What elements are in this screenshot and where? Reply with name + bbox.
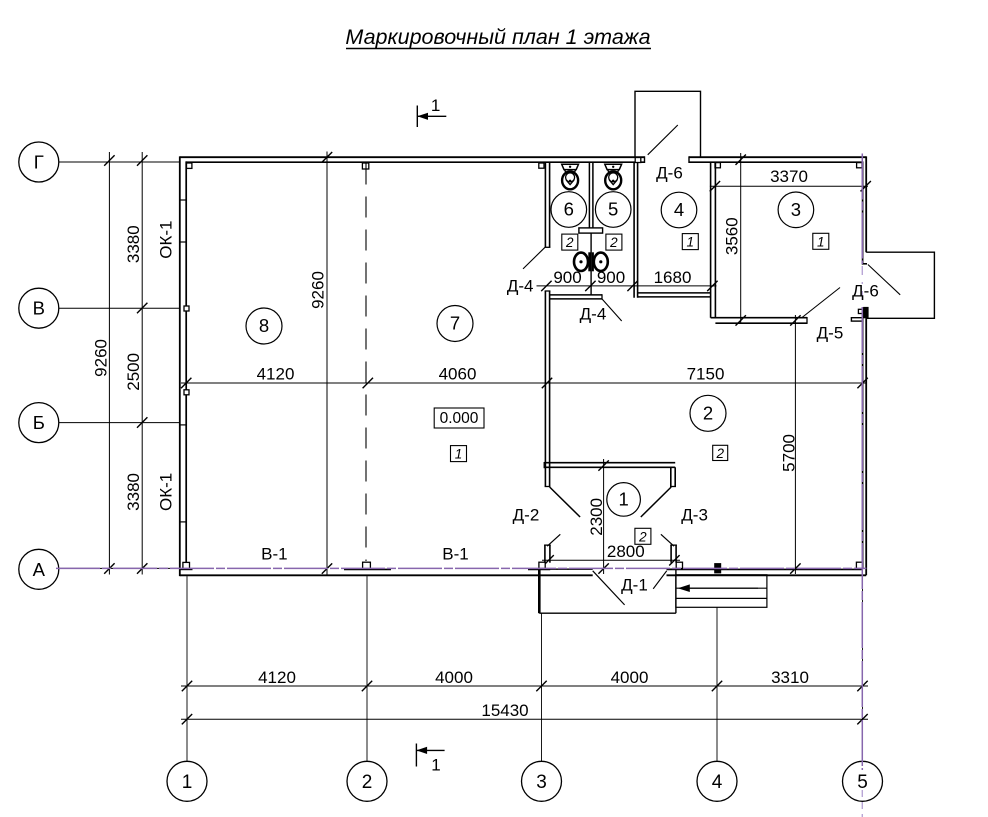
svg-text:4: 4 xyxy=(674,199,684,220)
svg-text:7150: 7150 xyxy=(687,365,725,384)
svg-text:Г: Г xyxy=(34,152,44,173)
svg-text:3370: 3370 xyxy=(770,167,808,186)
svg-text:3380: 3380 xyxy=(124,225,143,263)
svg-text:9260: 9260 xyxy=(309,271,328,309)
svg-text:15430: 15430 xyxy=(481,701,528,720)
svg-text:3310: 3310 xyxy=(771,668,809,687)
svg-text:9260: 9260 xyxy=(92,339,111,377)
svg-text:2: 2 xyxy=(638,529,647,544)
svg-text:В: В xyxy=(33,298,45,319)
svg-text:Д-3: Д-3 xyxy=(681,506,708,525)
svg-text:Д-4: Д-4 xyxy=(580,305,607,324)
svg-text:А: А xyxy=(33,559,46,580)
svg-text:3: 3 xyxy=(536,772,547,793)
svg-text:4060: 4060 xyxy=(439,365,477,384)
svg-text:1: 1 xyxy=(687,235,695,250)
svg-text:Б: Б xyxy=(33,412,45,433)
svg-text:2: 2 xyxy=(362,772,373,793)
svg-text:8: 8 xyxy=(259,315,269,336)
svg-text:Д-5: Д-5 xyxy=(817,324,844,343)
svg-text:ОК-1: ОК-1 xyxy=(157,473,176,511)
svg-text:5700: 5700 xyxy=(779,434,798,472)
svg-text:Д-2: Д-2 xyxy=(513,506,540,525)
svg-text:Д-6: Д-6 xyxy=(852,282,879,301)
svg-text:2500: 2500 xyxy=(124,353,143,391)
svg-text:В-1: В-1 xyxy=(442,545,468,564)
svg-text:3560: 3560 xyxy=(723,217,742,255)
svg-text:4120: 4120 xyxy=(257,365,295,384)
svg-text:Д-1: Д-1 xyxy=(621,576,648,595)
svg-text:5: 5 xyxy=(608,199,618,220)
svg-text:1: 1 xyxy=(817,234,825,249)
svg-text:ОК-1: ОК-1 xyxy=(157,220,176,258)
svg-text:3: 3 xyxy=(791,199,801,220)
svg-text:4120: 4120 xyxy=(258,668,296,687)
svg-text:Д-6: Д-6 xyxy=(656,164,683,183)
svg-text:2: 2 xyxy=(609,235,618,250)
svg-text:3380: 3380 xyxy=(124,473,143,511)
svg-text:2300: 2300 xyxy=(587,498,606,536)
svg-text:6: 6 xyxy=(564,199,574,220)
svg-text:0.000: 0.000 xyxy=(440,410,479,427)
svg-text:2: 2 xyxy=(565,235,574,250)
svg-text:В-1: В-1 xyxy=(261,545,287,564)
svg-text:1: 1 xyxy=(455,447,463,462)
svg-text:1: 1 xyxy=(618,488,628,509)
svg-text:1: 1 xyxy=(431,96,440,115)
svg-text:1: 1 xyxy=(431,756,440,775)
svg-text:2: 2 xyxy=(715,446,724,461)
svg-text:1680: 1680 xyxy=(654,268,692,287)
svg-text:7: 7 xyxy=(450,313,460,334)
svg-text:4000: 4000 xyxy=(611,668,649,687)
svg-text:5: 5 xyxy=(857,772,868,793)
svg-text:4: 4 xyxy=(712,772,723,793)
svg-text:Д-4: Д-4 xyxy=(507,277,534,296)
svg-text:4000: 4000 xyxy=(435,668,473,687)
svg-text:2: 2 xyxy=(703,402,713,423)
svg-text:Маркировочный план 1 этажа: Маркировочный план 1 этажа xyxy=(345,25,650,49)
svg-text:1: 1 xyxy=(182,772,193,793)
